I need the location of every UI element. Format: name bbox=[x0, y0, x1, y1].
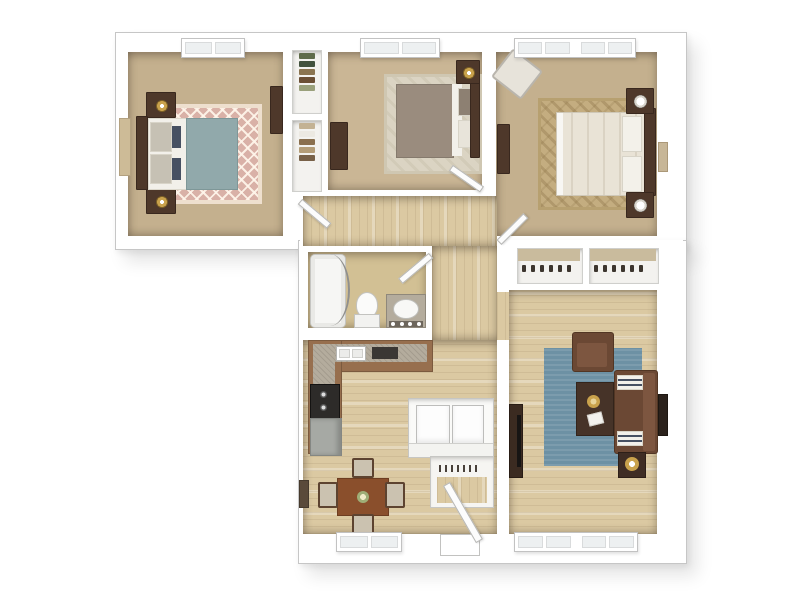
window-bedroom1 bbox=[181, 38, 245, 58]
window-pane bbox=[608, 42, 632, 54]
vanity-bulb bbox=[417, 322, 421, 326]
window-pane bbox=[545, 42, 569, 54]
vanity-bulb bbox=[400, 322, 404, 326]
dining-chair-bottom bbox=[352, 514, 374, 534]
hall-closet-top bbox=[292, 50, 322, 114]
bedroom1-duvet bbox=[186, 118, 238, 190]
sink-basin bbox=[352, 349, 363, 358]
hanger bbox=[469, 465, 471, 472]
refrigerator bbox=[310, 418, 342, 456]
room-bedroom-1 bbox=[128, 52, 283, 236]
bedroom1-accent-pillow-2 bbox=[172, 158, 181, 180]
master-nightstand-top bbox=[626, 88, 654, 114]
vanity-sink bbox=[393, 299, 419, 319]
bedroom2-nightstand bbox=[456, 60, 480, 84]
shoe bbox=[630, 265, 634, 272]
bedroom1-pillow-1 bbox=[150, 122, 172, 152]
hanger bbox=[451, 465, 453, 472]
sofa-pillow-bottom bbox=[617, 431, 643, 446]
shoe bbox=[522, 265, 526, 272]
side-table bbox=[618, 452, 646, 478]
flower-centerpiece bbox=[357, 491, 369, 503]
master-nightstand-bottom bbox=[626, 192, 654, 218]
shoe bbox=[594, 265, 598, 272]
laundry-counter bbox=[409, 443, 493, 457]
master-lamp-bottom bbox=[634, 199, 647, 212]
tv-console bbox=[509, 404, 523, 478]
bedroom1-dresser bbox=[270, 86, 283, 134]
papers bbox=[587, 411, 604, 426]
room-bathroom bbox=[308, 252, 426, 328]
dining-table bbox=[337, 478, 389, 516]
bedroom2-headboard bbox=[470, 82, 480, 158]
vanity-bulb bbox=[391, 322, 395, 326]
hanging-clothes bbox=[299, 77, 315, 83]
window-pane bbox=[546, 536, 571, 548]
dryer bbox=[452, 405, 484, 445]
coat-closet bbox=[430, 456, 494, 508]
master-headboard bbox=[644, 108, 656, 196]
window-mullion bbox=[574, 536, 579, 548]
hanger bbox=[445, 465, 447, 472]
toilet-tank bbox=[354, 314, 380, 328]
hanging-clothes bbox=[299, 123, 315, 129]
hanging-clothes bbox=[299, 139, 315, 145]
window-pane bbox=[215, 42, 242, 54]
hanger bbox=[463, 465, 465, 472]
window-mullion bbox=[573, 42, 578, 54]
shoe bbox=[639, 265, 643, 272]
room-hallway bbox=[303, 196, 497, 246]
kitchen-double-sink bbox=[336, 346, 366, 361]
window-pane bbox=[371, 536, 399, 548]
shoe-shelf bbox=[522, 263, 576, 273]
bedroom2-lamp bbox=[463, 67, 475, 79]
sink-basin bbox=[339, 349, 350, 358]
shower-curtain-rod bbox=[330, 254, 350, 326]
hall-closet-bottom bbox=[292, 120, 322, 192]
shoe bbox=[531, 265, 535, 272]
hanging-clothes bbox=[299, 147, 315, 153]
bathroom-vanity bbox=[386, 294, 426, 328]
window-pane bbox=[518, 536, 543, 548]
bedroom1-headboard bbox=[136, 116, 148, 190]
hanger bbox=[475, 465, 477, 472]
hanging-clothes bbox=[299, 85, 315, 91]
side-table-tray bbox=[625, 457, 639, 471]
range-burner bbox=[320, 391, 327, 398]
bedroom2-dresser bbox=[330, 122, 348, 170]
washer bbox=[416, 405, 450, 445]
dining-wall-art bbox=[299, 480, 309, 508]
armchair bbox=[572, 332, 614, 372]
dining-chair-top bbox=[352, 458, 374, 478]
closet-back-wall bbox=[518, 249, 580, 261]
kitchen-range bbox=[310, 384, 340, 420]
closet-back-wall bbox=[590, 249, 656, 261]
hanging-clothes bbox=[299, 61, 315, 67]
coffee-table bbox=[576, 382, 614, 436]
shoe bbox=[567, 265, 571, 272]
sofa-pillow-top bbox=[617, 375, 643, 390]
hanging-clothes bbox=[299, 53, 315, 59]
hanger bbox=[457, 465, 459, 472]
gold-tray bbox=[587, 395, 600, 408]
hanger bbox=[439, 465, 441, 472]
living-wall-art bbox=[658, 394, 668, 436]
hanging-clothes bbox=[299, 131, 315, 137]
sofa bbox=[614, 370, 658, 454]
hallway-vertical bbox=[432, 246, 497, 340]
window-pane bbox=[402, 42, 437, 54]
tv bbox=[517, 415, 521, 467]
hanging-clothes bbox=[299, 69, 315, 75]
window-pane bbox=[340, 536, 368, 548]
kitchen-cooktop bbox=[372, 347, 398, 359]
shoe bbox=[558, 265, 562, 272]
bedroom1-lamp-bottom bbox=[156, 196, 168, 208]
bedroom1-nightstand-bottom bbox=[146, 188, 176, 214]
shoe-shelf bbox=[594, 263, 652, 273]
living-closet-right bbox=[589, 248, 659, 284]
laundry-closet bbox=[408, 398, 494, 458]
shoe bbox=[549, 265, 553, 272]
bedroom1-pillow-2 bbox=[150, 154, 172, 184]
room-living bbox=[509, 290, 657, 534]
master-wall-art bbox=[658, 142, 668, 172]
bedroom1-nightstand-top bbox=[146, 92, 176, 118]
window-pane bbox=[364, 42, 399, 54]
window-pane bbox=[581, 42, 605, 54]
dining-chair-right bbox=[385, 482, 405, 508]
dining-chair-left bbox=[318, 482, 338, 508]
shoe bbox=[540, 265, 544, 272]
range-burner bbox=[320, 404, 327, 411]
window-pane bbox=[185, 42, 212, 54]
bedroom1-wall-mirror bbox=[119, 118, 131, 176]
living-closet-left bbox=[517, 248, 583, 284]
master-dresser bbox=[497, 124, 510, 174]
master-pillow-2 bbox=[622, 156, 642, 192]
window-pane bbox=[609, 536, 634, 548]
window-living bbox=[514, 532, 638, 552]
armchair-cushion bbox=[577, 343, 607, 367]
room-master-bedroom bbox=[496, 52, 657, 236]
master-lamp-top bbox=[634, 95, 647, 108]
coat-hanger-rod bbox=[439, 464, 485, 472]
shoe bbox=[612, 265, 616, 272]
window-master bbox=[514, 38, 636, 58]
window-bedroom2 bbox=[360, 38, 440, 58]
floor-plan-image bbox=[0, 0, 800, 600]
window-pane bbox=[518, 42, 542, 54]
vanity-bulb bbox=[408, 322, 412, 326]
shoe bbox=[621, 265, 625, 272]
sofa-back-cushions bbox=[643, 373, 655, 451]
living-room-opening bbox=[497, 292, 509, 340]
bedroom1-accent-pillow-1 bbox=[172, 126, 181, 148]
window-dining bbox=[336, 532, 402, 552]
hanging-clothes bbox=[299, 155, 315, 161]
bedroom2-duvet bbox=[396, 84, 454, 158]
shoe bbox=[603, 265, 607, 272]
vanity-lights bbox=[389, 321, 423, 327]
master-pillow-1 bbox=[622, 116, 642, 152]
bedroom1-lamp-top bbox=[156, 100, 168, 112]
window-pane bbox=[582, 536, 607, 548]
